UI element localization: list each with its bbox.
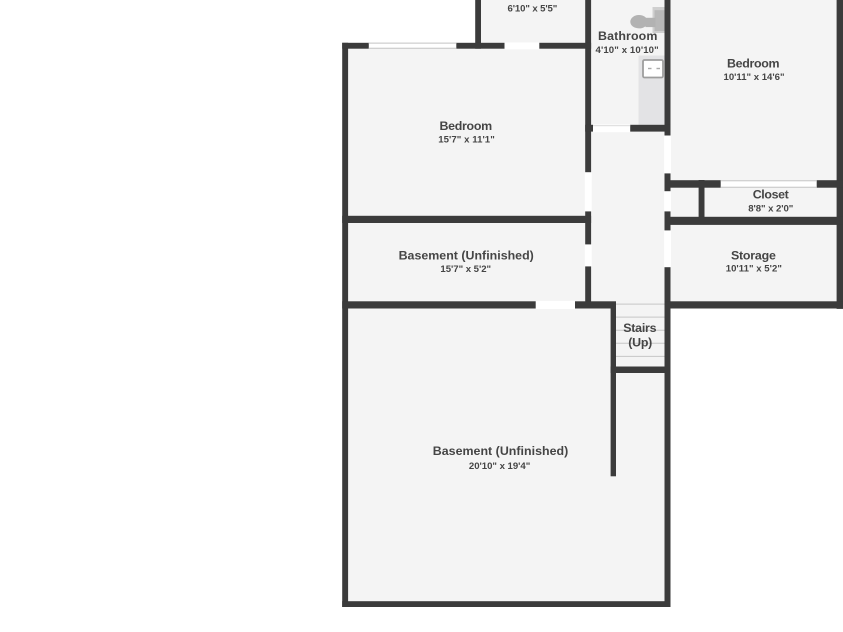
svg-text:Bedroom: Bedroom [727, 57, 780, 71]
svg-text:6'10" x 5'5": 6'10" x 5'5" [508, 3, 558, 14]
svg-text:15'7" x 11'1": 15'7" x 11'1" [438, 135, 495, 146]
svg-text:Basement (Unfinished): Basement (Unfinished) [433, 444, 569, 458]
svg-text:20'10" x 19'4": 20'10" x 19'4" [469, 461, 530, 472]
svg-text:10'11" x 14'6": 10'11" x 14'6" [724, 72, 785, 83]
svg-text:Bedroom: Bedroom [439, 119, 492, 133]
svg-text:Stairs: Stairs [623, 321, 656, 335]
svg-text:Storage: Storage [731, 248, 776, 262]
svg-text:4'10" x 10'10": 4'10" x 10'10" [596, 45, 659, 56]
svg-text:Closet: Closet [753, 188, 789, 202]
svg-text:Bathroom: Bathroom [598, 29, 657, 43]
svg-text:10'11" x 5'2": 10'11" x 5'2" [726, 264, 782, 275]
svg-text:15'7" x 5'2": 15'7" x 5'2" [440, 264, 491, 275]
svg-text:Basement (Unfinished): Basement (Unfinished) [399, 249, 534, 263]
svg-text:8'8" x 2'0": 8'8" x 2'0" [748, 204, 793, 215]
svg-text:(Up): (Up) [628, 336, 652, 350]
